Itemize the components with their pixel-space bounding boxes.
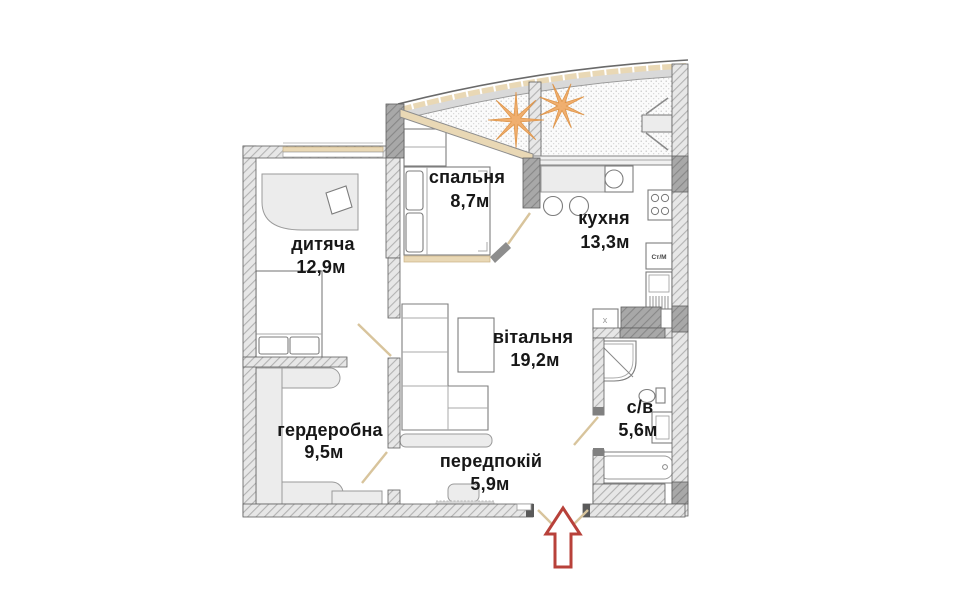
plant-icon [488,92,544,148]
entrance-arrow [546,508,580,567]
door-bedroom-leaf [490,242,511,263]
label-bathroom-name: с/в [627,397,654,417]
shelving-bottom-ext [332,491,382,504]
shelving-top [282,368,340,388]
pillow [259,337,288,354]
wall-left [243,146,256,516]
label-kitchen-area: 13,3м [580,232,629,252]
wall-wardrobe-top [243,357,347,367]
wall-bottom-left [243,504,533,517]
vent-label: x [603,315,608,325]
pillow [406,213,423,252]
label-bedroom-area: 8,7м [450,191,489,211]
wall-spine [388,258,400,318]
washing-machine-label: Ст/М [651,254,666,261]
label-wardrobe-area: 9,5м [304,442,343,462]
label-kitchen-name: кухня [578,208,630,228]
label-living-area: 19,2м [510,350,559,370]
cabinet-hatched [621,307,661,330]
window-children [283,147,383,152]
door-wardrobe [362,452,387,483]
stove [648,190,672,220]
kitchen-sink-round [605,170,623,188]
label-bathroom-area: 5,6м [618,420,657,440]
label-children-area: 12,9м [296,257,345,277]
label-living-name: вітальня [493,327,573,347]
label-hallway-name: передпокій [440,451,542,471]
label-wardrobe-name: гердеробна [277,420,383,440]
wall-bedroom-right [523,158,540,208]
wall-spine [386,158,400,258]
tv-stand [400,434,492,447]
cabinet-small [661,309,672,330]
wall-bathtub-strip [593,484,665,504]
pillow [406,171,423,210]
wall-spine-stub [388,490,400,504]
floor-plan-canvas: Ст/М x [0,0,974,600]
coffee-table [458,318,494,372]
window-bedroom-bottom [404,256,490,262]
door-children [358,324,391,356]
label-hallway-area: 5,9м [470,474,509,494]
room-living-furniture [400,304,494,447]
label-bedroom-name: спальня [429,167,505,187]
wall-spine [388,358,400,448]
pillow [290,337,319,354]
wall-bathroom-left [593,338,604,415]
door-bedroom-swing [508,213,530,244]
entrance-threshold [517,504,531,510]
toilet-tank [656,388,665,403]
door-bathroom [574,417,598,445]
floor-plan: Ст/М x [0,0,974,600]
label-children-name: дитяча [291,234,355,254]
wall-bottom-right [583,504,685,517]
kitchen-counter [541,166,605,192]
stool [544,197,563,216]
wall-right [672,64,688,516]
